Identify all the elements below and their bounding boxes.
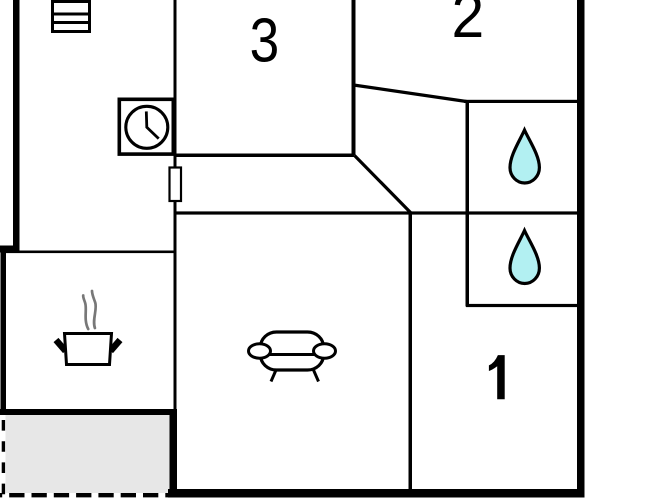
- svg-text:3: 3: [250, 7, 280, 76]
- svg-text:2: 2: [452, 0, 485, 51]
